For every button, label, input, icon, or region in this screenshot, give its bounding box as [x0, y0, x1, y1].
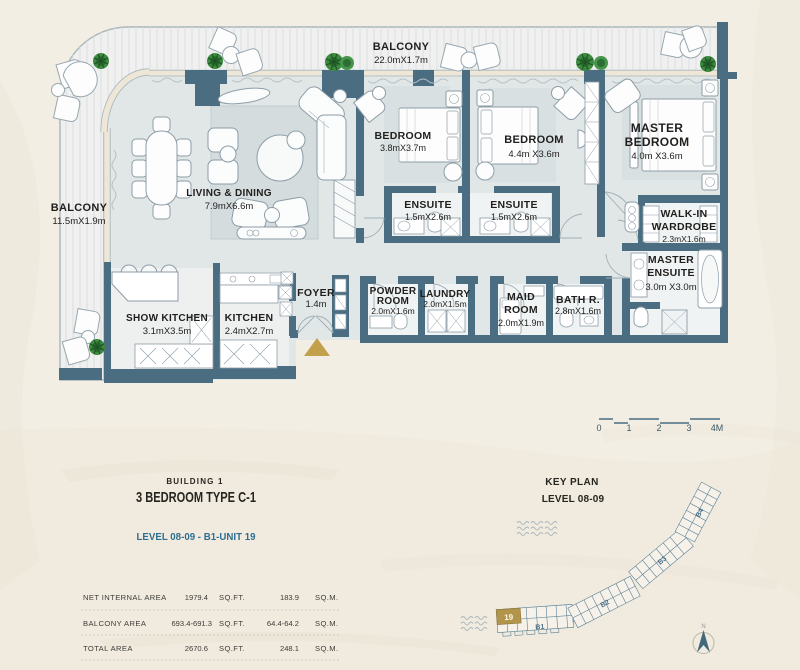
- svg-text:64.4-64.2: 64.4-64.2: [267, 619, 299, 628]
- svg-text:11.5mX1.9m: 11.5mX1.9m: [52, 216, 105, 227]
- svg-text:3.1mX3.5m: 3.1mX3.5m: [143, 326, 192, 337]
- svg-text:SQ.FT.: SQ.FT.: [219, 593, 245, 602]
- svg-text:BALCONY AREA: BALCONY AREA: [83, 619, 147, 628]
- svg-text:KITCHEN: KITCHEN: [225, 312, 274, 324]
- svg-text:2.0mX1.9m: 2.0mX1.9m: [498, 318, 544, 328]
- svg-text:2.8mX1.6m: 2.8mX1.6m: [555, 306, 601, 316]
- svg-text:SQ.M.: SQ.M.: [315, 644, 339, 653]
- svg-text:2.4mX2.7m: 2.4mX2.7m: [225, 326, 274, 337]
- svg-text:SQ.FT.: SQ.FT.: [219, 619, 245, 628]
- svg-text:LIVING & DINING: LIVING & DINING: [186, 188, 272, 199]
- svg-text:2670.6: 2670.6: [185, 644, 208, 653]
- svg-text:2.0mX1.6m: 2.0mX1.6m: [371, 306, 414, 316]
- svg-text:N: N: [701, 624, 705, 630]
- svg-text:NET INTERNAL AREA: NET INTERNAL AREA: [83, 593, 167, 602]
- svg-text:2.3mX1.6m: 2.3mX1.6m: [662, 234, 705, 244]
- svg-text:4M: 4M: [711, 423, 724, 433]
- svg-text:BATH R.: BATH R.: [556, 294, 600, 306]
- svg-text:SHOW KITCHEN: SHOW KITCHEN: [126, 313, 208, 324]
- svg-text:4.4m X3.6m: 4.4m X3.6m: [508, 149, 559, 160]
- svg-text:3.8mX3.7m: 3.8mX3.7m: [380, 143, 426, 153]
- svg-text:TOTAL AREA: TOTAL AREA: [83, 644, 133, 653]
- svg-text:1.5mX2.6m: 1.5mX2.6m: [491, 212, 537, 222]
- svg-text:3 BEDROOM TYPE C-1: 3 BEDROOM TYPE C-1: [136, 489, 256, 506]
- svg-text:1: 1: [626, 423, 631, 433]
- svg-text:MAID: MAID: [507, 291, 535, 303]
- svg-text:BEDROOM: BEDROOM: [625, 135, 690, 149]
- svg-text:MASTER: MASTER: [631, 121, 683, 135]
- svg-text:WARDROBE: WARDROBE: [652, 221, 717, 233]
- svg-text:1979.4: 1979.4: [185, 593, 208, 602]
- svg-text:KEY PLAN: KEY PLAN: [545, 477, 599, 488]
- svg-text:LEVEL 08-09: LEVEL 08-09: [542, 494, 605, 505]
- svg-text:BEDROOM: BEDROOM: [504, 134, 564, 146]
- svg-text:693.4-691.3: 693.4-691.3: [171, 619, 212, 628]
- svg-text:4.0m X3.6m: 4.0m X3.6m: [631, 151, 682, 162]
- svg-text:0: 0: [596, 423, 601, 433]
- svg-text:BALCONY: BALCONY: [373, 41, 430, 53]
- svg-text:183.9: 183.9: [280, 593, 299, 602]
- svg-text:1.4m: 1.4m: [305, 299, 326, 310]
- svg-text:BUILDING 1: BUILDING 1: [166, 477, 223, 486]
- svg-text:BALCONY: BALCONY: [51, 202, 108, 214]
- svg-text:22.0mX1.7m: 22.0mX1.7m: [374, 55, 428, 66]
- svg-text:ENSUITE: ENSUITE: [647, 267, 695, 279]
- svg-text:7.9mX6.6m: 7.9mX6.6m: [205, 201, 254, 212]
- svg-text:19: 19: [504, 612, 514, 622]
- svg-text:WALK-IN: WALK-IN: [660, 208, 707, 220]
- svg-text:B1: B1: [535, 624, 545, 632]
- svg-text:3: 3: [686, 423, 691, 433]
- svg-text:2.0mX1.5m: 2.0mX1.5m: [423, 299, 466, 309]
- svg-text:ENSUITE: ENSUITE: [490, 199, 538, 211]
- svg-text:2: 2: [656, 423, 661, 433]
- svg-text:SQ.M.: SQ.M.: [315, 593, 339, 602]
- svg-text:SQ.FT.: SQ.FT.: [219, 644, 245, 653]
- svg-text:1.5mX2.6m: 1.5mX2.6m: [405, 212, 451, 222]
- svg-text:SQ.M.: SQ.M.: [315, 619, 339, 628]
- svg-text:FOYER: FOYER: [297, 287, 335, 299]
- svg-text:3.0m X3.0m: 3.0m X3.0m: [645, 282, 696, 293]
- svg-text:ROOM: ROOM: [504, 304, 538, 316]
- svg-text:LEVEL 08-09 - B1-UNIT 19: LEVEL 08-09 - B1-UNIT 19: [137, 532, 256, 543]
- svg-text:MASTER: MASTER: [648, 254, 694, 266]
- svg-text:ENSUITE: ENSUITE: [404, 199, 452, 211]
- svg-text:248.1: 248.1: [280, 644, 299, 653]
- svg-text:BEDROOM: BEDROOM: [375, 130, 432, 142]
